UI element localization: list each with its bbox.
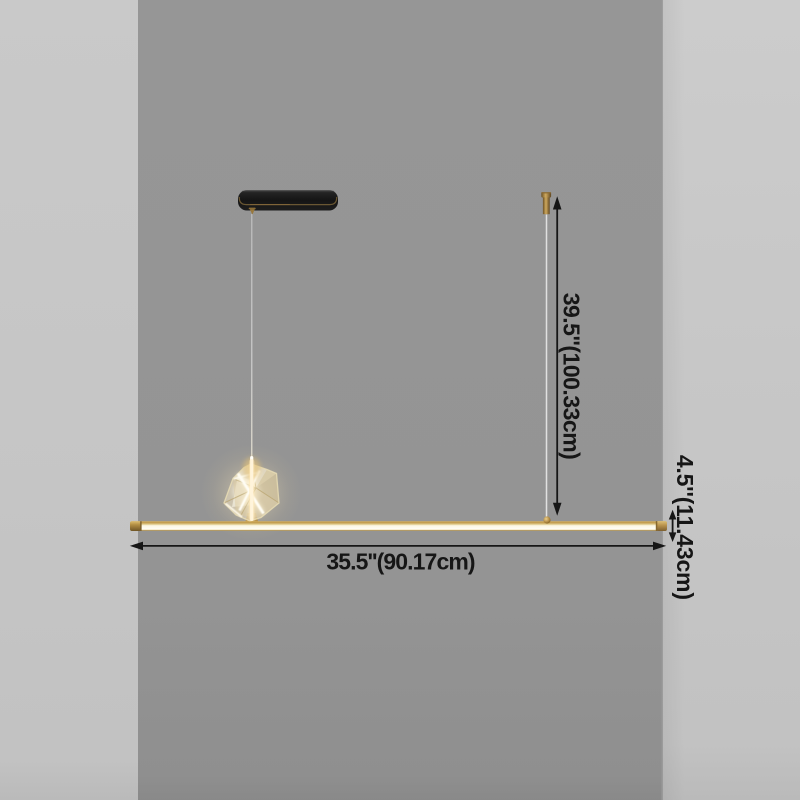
svg-text:4.5''(11.43cm): 4.5''(11.43cm): [672, 455, 698, 600]
svg-text:39.5''(100.33cm): 39.5''(100.33cm): [559, 293, 585, 460]
svg-text:35.5''(90.17cm): 35.5''(90.17cm): [326, 549, 475, 575]
